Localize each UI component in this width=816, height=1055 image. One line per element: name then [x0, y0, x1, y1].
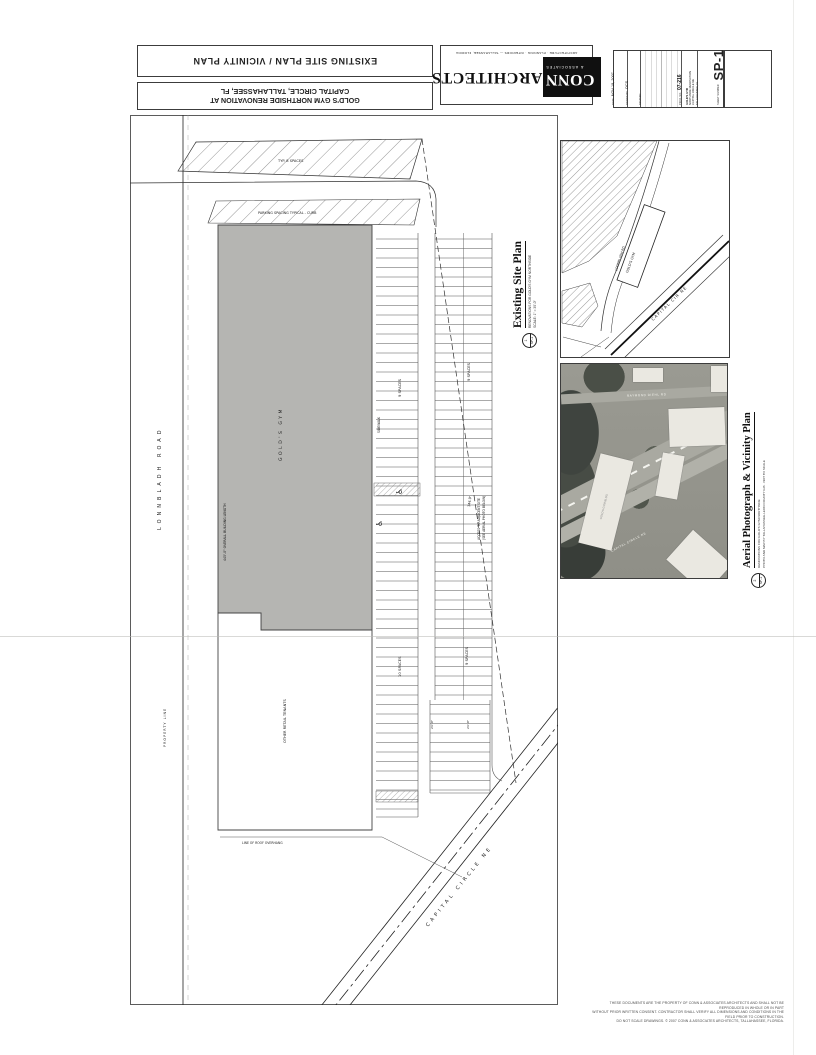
titleblock-revised-col: REVISED [641, 51, 682, 107]
building-golds-gym [218, 225, 372, 630]
logo-architects-text: ARCHITECTS [432, 57, 544, 97]
project-title-box: GOLD'S GYM NORTHSIDE RENOVATION AT CAPIT… [137, 82, 433, 110]
aerial-sub2: PHOTO AND MAP BY TALLAHASSEE-LEON COUNTY… [762, 412, 766, 568]
band1-label: TYP. 8 SPACES [277, 159, 304, 163]
project-title-rotated: GOLD'S GYM NORTHSIDE RENOVATION AT CAPIT… [138, 83, 432, 109]
sheet-title-box: EXISTING SITE PLAN / VICINITY PLAN [137, 45, 433, 77]
existing-plan-title-wrap: 1 SP-1 Existing Site Plan RENOVATIONS FO… [482, 160, 538, 348]
projname-line4: TALLAHASSEE, FL [696, 81, 699, 105]
logo-row: CONN & ASSOCIATES ARCHITECTS [432, 57, 602, 97]
date-label: DATE [612, 98, 615, 105]
detail-marker-icon: 1 SP-1 [522, 333, 537, 348]
vicinity-capital-label: CAPITAL CIR NE [650, 285, 688, 322]
aerial-building-d [666, 530, 728, 579]
existing-plan-title: 1 SP-1 Existing Site Plan RENOVATIONS FO… [482, 160, 537, 348]
other-tenants-label: OTHER RETAIL TENANTS [283, 699, 287, 743]
aerial-building-e [633, 368, 663, 382]
date-value: NOV 19, 2007 [611, 72, 615, 96]
projno-value: 07-216 [677, 74, 683, 90]
drawn-field: DRAWN BY OCS [625, 53, 629, 105]
spaces-b2-label: 9 SPACES [464, 646, 469, 665]
logo-associates-text: & ASSOCIATES [545, 66, 583, 70]
revised-label: REVISED [639, 94, 642, 105]
title-block: DATE NOV 19, 2007 DRAWN BY OCS REVISED P… [613, 50, 724, 108]
logo-black-block: CONN & ASSOCIATES [543, 57, 601, 97]
architect-logo-box: CONN & ASSOCIATES ARCHITECTS ARCHITECTUR… [440, 45, 593, 105]
aerial-building-a [668, 407, 725, 447]
sheet-title-rotated: EXISTING SITE PLAN / VICINITY PLAN [138, 46, 432, 76]
aerial-sub1: RENOVATIONS FOR GOLD'S GYM NORTHSIDE [757, 412, 761, 568]
detail-marker-icon: 2 SP-1 [751, 573, 766, 588]
existing-title-text: Existing Site Plan RENOVATIONS FOR GOLD'… [512, 241, 537, 328]
architect-logo: CONN & ASSOCIATES ARCHITECTS ARCHITECTUR… [441, 46, 592, 104]
drawn-value: OCS [625, 81, 629, 89]
sidewalk-label: SIDEWALK [377, 416, 381, 433]
marker-sheet: SP-1 [531, 337, 534, 345]
project-line2: CAPITAL CIRCLE, TALLAHASSEE, FL [221, 87, 350, 96]
existing-sub2: SCALE: 1" = 30'-0" [533, 241, 537, 328]
fine-print: THESE DOCUMENTS ARE THE PROPERTY OF CONN… [588, 1001, 784, 1024]
sheet-number-field: SHEET NUMBER SP-1 [711, 53, 726, 105]
existing-title: Existing Site Plan [512, 241, 526, 328]
property-line-label: PROPERTY LINE [163, 708, 167, 747]
spaces-a2-label: 10 SPACES [397, 656, 402, 677]
marker-number: 1 [525, 340, 528, 342]
road-diagonal-label: CAPITAL CIRCLE NE [425, 845, 494, 928]
sheet-number-value: SP-1 [711, 50, 726, 81]
sheet-number-label: SHEET NUMBER [717, 84, 720, 105]
dim2-label: 24'-0" [466, 719, 470, 729]
sidewalk-hatch-2 [376, 791, 418, 802]
road-left-label: LONNBLADH ROAD [157, 426, 163, 530]
scan-fold-line [0, 636, 816, 637]
spaces-a1-label: 9 SPACES [397, 378, 402, 397]
projname-field: GOLD'S GYM NORTHSIDE RENOVATION CAPITAL … [687, 53, 700, 105]
aerial-capital-label: CAPITAL CIRCLE NE [610, 531, 647, 553]
band2-label: PARKING SPACING TYPICAL - CURB [258, 211, 317, 215]
aerial-photo: GOLD'S GYM BLDG CAPITAL CIRCLE NE RAYMON… [560, 363, 728, 579]
vicinity-map-box: GOLD'S GYM CAPITAL CIR NE LONNBLADH RD [560, 140, 730, 358]
scan-edge-shadow [793, 0, 794, 1055]
project-line1: GOLD'S GYM NORTHSIDE RENOVATION AT [210, 96, 360, 105]
sheet-number-box: SHEET NUMBER SP-1 [724, 50, 772, 108]
vicinity-map-drawing: GOLD'S GYM CAPITAL CIR NE LONNBLADH RD [561, 141, 729, 357]
woods-hatch-area-2 [562, 283, 598, 327]
minor-road-1 [563, 337, 601, 347]
access-note-line1: ACCESS TO ADJACENT SITE [477, 498, 481, 540]
logo-address: ARCHITECTURE · PLANNING · INTERIORS — TA… [456, 51, 577, 55]
overhang-note: LINE OF ROOF OVERHANG [242, 841, 283, 845]
building-retail [218, 613, 372, 830]
access-note-line2: (SEE AERIAL PHOTO BELOW) [482, 496, 486, 540]
aerial-building-label: GOLD'S GYM BLDG [599, 494, 609, 520]
projno-field: PROJ. NO. 07-216 [677, 53, 683, 105]
logo-conn-text: CONN [545, 71, 594, 89]
fine-print-line1: THESE DOCUMENTS ARE THE PROPERTY OF CONN… [588, 1001, 784, 1010]
parking-row-b1-ticks [435, 233, 464, 700]
revision-row-lines [641, 51, 681, 107]
building-label: GOLD'S GYM [278, 407, 284, 461]
fine-print-line3: DO NOT SCALE DRAWINGS. © 2007 CONN & ASS… [588, 1019, 784, 1024]
aerial-title-text: Aerial Photograph & Vicinity Plan RENOVA… [742, 412, 766, 568]
marker-number: 2 [754, 580, 757, 582]
date-field: DATE NOV 19, 2007 [611, 53, 615, 105]
parking-row-c-ticks [430, 700, 490, 793]
drive-curb-return [492, 700, 502, 781]
marker-sheet: SP-1 [760, 577, 763, 585]
drawing-sheet: EXISTING SITE PLAN / VICINITY PLAN GOLD'… [0, 0, 816, 1055]
drawn-label: DRAWN BY [625, 91, 628, 105]
handicap-icon: ♿ [375, 520, 384, 527]
building-length-label: 445'-0" OVERALL BUILDING LENGTH [223, 503, 227, 561]
projno-label: PROJ. NO. [678, 92, 681, 105]
dim1-label: 24'-0" [430, 719, 434, 729]
aerial-title: 2 SP-1 Aerial Photograph & Vicinity Plan… [724, 358, 766, 588]
fine-print-line2: WITHOUT PRIOR WRITTEN CONSENT. CONTRACTO… [588, 1010, 784, 1019]
sheet-title: EXISTING SITE PLAN / VICINITY PLAN [193, 56, 377, 66]
aerial-title-main: Aerial Photograph & Vicinity Plan [742, 412, 755, 568]
revised-field: REVISED [639, 53, 642, 105]
minor-road-2 [581, 337, 609, 357]
existing-sub1: RENOVATIONS FOR GOLD'S GYM NORTHSIDE [528, 241, 532, 328]
spaces-b1-label: 9 SPACES [466, 362, 471, 381]
aerial-title-wrap: 2 SP-1 Aerial Photograph & Vicinity Plan… [724, 358, 768, 588]
handicap-icon: ♿ [395, 488, 404, 495]
